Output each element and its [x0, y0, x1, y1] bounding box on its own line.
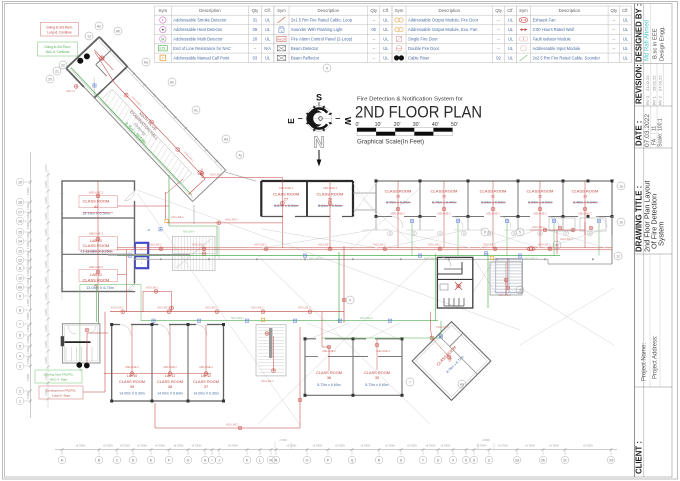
svg-text:Design Engg.: Design Engg.	[660, 26, 666, 61]
svg-text:2: 2	[19, 389, 21, 393]
svg-text:Addressable Manual Call Point: Addressable Manual Call Point	[173, 56, 230, 61]
svg-text:L: L	[259, 458, 261, 462]
svg-text:S: S	[400, 458, 403, 462]
svg-text:Sym: Sym	[395, 8, 404, 13]
svg-text:19: 19	[18, 180, 22, 184]
svg-text:CLASS ROOM: CLASS ROOM	[83, 243, 110, 248]
svg-text:S: S	[465, 458, 468, 462]
svg-text:ASD-LINE 2: ASD-LINE 2	[146, 287, 159, 290]
svg-text:ASD-L 2: ASD-L 2	[66, 90, 76, 93]
svg-text:V: V	[452, 458, 455, 462]
svg-text:7.6200: 7.6200	[45, 324, 48, 332]
svg-text:R: R	[378, 458, 381, 462]
svg-text:UL: UL	[508, 46, 514, 51]
svg-text:W: W	[343, 117, 353, 126]
svg-text:K: K	[246, 458, 249, 462]
svg-text:D: D	[132, 458, 135, 462]
svg-text:14.00m X 6.84m: 14.00m X 6.84m	[157, 392, 183, 396]
svg-text:REVISION:: REVISION:	[635, 64, 644, 104]
svg-text:4.5000: 4.5000	[27, 212, 30, 220]
svg-text:10': 10'	[375, 122, 382, 128]
svg-text:RV 0: RV 0	[645, 95, 650, 105]
svg-text:2x1.5 Rm Fire Rated Cable, Loo: 2x1.5 Rm Fire Rated Cable, Loop	[291, 18, 353, 23]
svg-text:Clf.: Clf.	[264, 8, 270, 13]
svg-text:4.5000: 4.5000	[27, 222, 30, 230]
svg-text:36: 36	[327, 375, 331, 380]
svg-text:RV 1: RV 1	[651, 95, 656, 105]
svg-text:ASD-LINE 2: ASD-LINE 2	[391, 212, 405, 215]
svg-text:ASD-LINE 2: ASD-LINE 2	[376, 350, 390, 353]
svg-text:CLASS ROOM: CLASS ROOM	[83, 278, 110, 283]
svg-text:7.6200: 7.6200	[45, 340, 48, 348]
svg-text:7.6200: 7.6200	[45, 356, 48, 364]
svg-text:Aa: Aa	[144, 60, 148, 64]
svg-text:ASD-LINE 2: ASD-LINE 2	[171, 216, 184, 219]
svg-text:1: 1	[19, 399, 21, 403]
svg-text:--: --	[612, 27, 615, 32]
svg-text:ASD-LINE 2: ASD-LINE 2	[533, 212, 547, 215]
svg-text:2a: 2a	[515, 458, 519, 462]
svg-text:4.5000: 4.5000	[27, 298, 30, 306]
svg-text:0': 0'	[356, 122, 360, 128]
svg-text:9: 9	[326, 66, 328, 70]
svg-text:Addressable Smoke Detector: Addressable Smoke Detector	[173, 18, 227, 23]
svg-text:Description: Description	[559, 8, 581, 13]
svg-text:Ag: Ag	[460, 382, 464, 386]
svg-text:Fault Isolator Module: Fault Isolator Module	[533, 37, 572, 42]
svg-text:2d: 2d	[609, 458, 613, 462]
svg-text:2:00 Hours Rated Wall: 2:00 Hours Rated Wall	[533, 27, 574, 32]
svg-text:4.5000: 4.5000	[27, 346, 30, 354]
svg-text:09: 09	[253, 27, 258, 32]
svg-text:ASD-LINE 2: ASD-LINE 2	[111, 307, 124, 310]
svg-text:ASD-LINE 2: ASD-LINE 2	[578, 212, 592, 215]
svg-text:F: F	[162, 56, 164, 60]
svg-text:8.67m x 6.54m: 8.67m x 6.54m	[274, 204, 298, 208]
svg-text:LAB 12: LAB 12	[90, 273, 102, 277]
svg-text:Addressable Output Module, Fir: Addressable Output Module, Fire Door	[408, 18, 479, 23]
svg-text:Ab: Ab	[116, 29, 120, 33]
svg-text:=6.7000=: =6.7000=	[335, 445, 346, 448]
svg-text:Loop-6, Continue: Loop-6, Continue	[47, 31, 72, 35]
svg-text:UL: UL	[383, 18, 389, 23]
svg-text:UL: UL	[508, 27, 514, 32]
svg-text:NAC-LINE 4: NAC-LINE 4	[360, 317, 373, 320]
svg-text:L: L	[141, 261, 143, 265]
svg-text:S: S	[316, 93, 322, 103]
svg-text:RV 2: RV 2	[658, 95, 663, 105]
svg-text:B: B	[98, 458, 101, 462]
svg-text:2c: 2c	[563, 458, 567, 462]
svg-text:7.6200: 7.6200	[45, 260, 48, 268]
svg-text:4.5000: 4.5000	[27, 259, 30, 267]
svg-text:Project Address:: Project Address:	[653, 335, 659, 379]
svg-text:Ac: Ac	[194, 108, 198, 112]
svg-text:7.6200: 7.6200	[45, 196, 48, 204]
svg-text:11: 11	[18, 266, 22, 270]
svg-text:--: --	[372, 46, 375, 51]
svg-text:UL: UL	[383, 56, 389, 61]
svg-text:--: --	[372, 56, 375, 61]
svg-text:Coming from FACP/2,: Coming from FACP/2,	[43, 373, 73, 377]
svg-text:Sym: Sym	[277, 8, 286, 13]
svg-text:=6.7000=: =6.7000=	[549, 445, 560, 448]
svg-text:UL: UL	[623, 37, 629, 42]
svg-text:7: 7	[19, 322, 21, 326]
svg-text:13.19m X 6.50m: 13.19m X 6.50m	[82, 212, 110, 216]
svg-text:Double Fire Door: Double Fire Door	[408, 46, 440, 51]
svg-text:--: --	[612, 18, 615, 23]
svg-text:N/A: N/A	[264, 46, 271, 51]
svg-text:UL: UL	[508, 18, 514, 23]
svg-text:4.5000: 4.5000	[27, 312, 30, 320]
svg-text:F: F	[162, 19, 164, 23]
svg-text:50': 50'	[451, 122, 458, 128]
svg-text:--: --	[254, 46, 257, 51]
svg-text:ASD-LINE 2: ASD-LINE 2	[322, 350, 336, 353]
svg-text:07.03.22: 07.03.22	[658, 75, 663, 91]
svg-text:=6.7000=: =6.7000=	[440, 445, 451, 448]
svg-text:EOL: EOL	[159, 47, 166, 51]
svg-text:28: 28	[328, 197, 333, 202]
svg-text:=6.7000=: =6.7000=	[360, 445, 371, 448]
svg-text:2ND FLOOR PLAN: 2ND FLOOR PLAN	[355, 103, 482, 122]
svg-text:03: 03	[253, 56, 258, 61]
svg-text:NAC-LINE 4: NAC-LINE 4	[231, 317, 244, 320]
svg-text:7.6200: 7.6200	[45, 164, 48, 172]
svg-text:UL: UL	[623, 46, 629, 51]
svg-text:H: H	[204, 458, 207, 462]
svg-text:20: 20	[48, 77, 52, 81]
svg-text:=6.7000=: =6.7000=	[286, 445, 297, 448]
svg-text:8: 8	[19, 308, 21, 312]
svg-text:2b: 2b	[541, 458, 545, 462]
svg-text:=6.7000=: =6.7000=	[425, 445, 436, 448]
svg-text:4: 4	[349, 298, 351, 302]
svg-text:4.5000: 4.5000	[27, 251, 30, 259]
svg-text:Clf.: Clf.	[507, 8, 513, 13]
svg-text:Cable Riser: Cable Riser	[408, 56, 430, 61]
svg-text:6: 6	[484, 230, 486, 234]
svg-text:=6.7000=: =6.7000=	[103, 445, 114, 448]
svg-text:3: 3	[19, 364, 21, 368]
svg-text:Md Rafi Ahmed: Md Rafi Ahmed	[645, 20, 651, 61]
svg-text:ASD-LINE 2: ASD-LINE 2	[163, 366, 177, 369]
svg-text:Z: Z	[488, 458, 491, 462]
svg-text:05: 05	[371, 27, 376, 32]
svg-text:Description: Description	[439, 8, 461, 13]
svg-text:7.6200: 7.6200	[45, 292, 48, 300]
svg-text:--: --	[372, 18, 375, 23]
svg-text:N: N	[275, 458, 278, 462]
svg-text:=6.7000=: =6.7000=	[385, 445, 396, 448]
svg-text:ASD-LINE 2: ASD-LINE 2	[251, 307, 264, 310]
svg-text:UL: UL	[265, 37, 271, 42]
svg-text:ASD-LINE 2: ASD-LINE 2	[428, 244, 441, 247]
svg-text:O: O	[306, 458, 309, 462]
svg-text:ASD-LINE 2: ASD-LINE 2	[89, 232, 104, 236]
svg-text:=6.7000=: =6.7000=	[173, 445, 184, 448]
svg-text:Ah: Ah	[170, 80, 174, 84]
svg-text:ASD-LINE 2: ASD-LINE 2	[298, 307, 311, 310]
svg-text:Addressable Input Module: Addressable Input Module	[533, 46, 581, 51]
svg-text:14.00m X 6.30m: 14.00m X 6.30m	[119, 392, 145, 396]
svg-text:2.7200: 2.7200	[279, 439, 287, 442]
svg-text:7: 7	[409, 380, 411, 384]
svg-text:CLASS ROOM: CLASS ROOM	[83, 199, 110, 204]
svg-text:ASD-LINE 2: ASD-LINE 2	[436, 326, 449, 329]
svg-text:Description: Description	[318, 8, 340, 13]
svg-text:End of Line Resistance for NAC: End of Line Resistance for NAC	[173, 46, 231, 51]
svg-text:Going to 3rd Floor,: Going to 3rd Floor,	[44, 45, 71, 49]
svg-text:=6.7000=: =6.7000=	[228, 445, 239, 448]
svg-text:=6.7000=: =6.7000=	[155, 445, 166, 448]
svg-text:FA: FA	[651, 138, 657, 145]
svg-text:Loop-6, Start: Loop-6, Start	[52, 394, 70, 398]
svg-text:1c: 1c	[616, 254, 620, 258]
svg-text:38: 38	[168, 384, 172, 389]
svg-text:--: --	[372, 37, 375, 42]
svg-text:7.6200: 7.6200	[45, 244, 48, 252]
svg-text:2x2.5 Rm Fire Rated Cable, Sou: 2x2.5 Rm Fire Rated Cable, Sounder	[533, 56, 601, 61]
svg-text:ASD-LINE 2: ASD-LINE 2	[149, 244, 162, 247]
svg-text:ASD-LINE 2: ASD-LINE 2	[225, 219, 238, 222]
svg-text:-B: -B	[147, 228, 150, 232]
svg-text:1b: 1b	[619, 220, 623, 224]
svg-text:=6.7000=: =6.7000=	[137, 445, 148, 448]
svg-text:5: 5	[19, 344, 21, 348]
svg-text:10: 10	[18, 276, 22, 280]
svg-text:21.02.22: 21.02.22	[645, 75, 650, 91]
svg-text:ASD-LINE 2: ASD-LINE 2	[373, 244, 386, 247]
svg-text:Exhaust Fan: Exhaust Fan	[533, 18, 557, 23]
svg-text:UL: UL	[383, 37, 389, 42]
svg-text:4.5000: 4.5000	[27, 336, 30, 344]
svg-text:UL: UL	[508, 56, 514, 61]
svg-text:UL: UL	[623, 27, 629, 32]
svg-text:System: System	[657, 222, 666, 246]
svg-text:5: 5	[519, 230, 521, 234]
svg-text:Description: Description	[199, 8, 221, 13]
svg-text:30': 30'	[413, 122, 420, 128]
svg-text:4: 4	[19, 354, 21, 358]
svg-text:13: 13	[87, 34, 91, 38]
svg-text:07.03.2022: 07.03.2022	[644, 114, 651, 147]
svg-text:B.sc in EEE: B.sc in EEE	[653, 28, 659, 59]
svg-text:4.5000: 4.5000	[27, 202, 30, 210]
svg-text:ASD-LINE 2: ASD-LINE 2	[192, 244, 205, 247]
svg-text:=6.7000=: =6.7000=	[498, 445, 509, 448]
svg-text:ASD-LINE 2: ASD-LINE 2	[323, 186, 338, 190]
svg-text:4.5000: 4.5000	[27, 232, 30, 240]
svg-text:13.08m X 6.75m: 13.08m X 6.75m	[86, 286, 114, 290]
svg-text:--: --	[497, 46, 500, 51]
svg-text:40': 40'	[432, 122, 439, 128]
svg-text:UL: UL	[623, 18, 629, 23]
svg-text:ASD-LINE 2: ASD-LINE 2	[532, 226, 545, 229]
svg-text:Qty: Qty	[370, 8, 378, 13]
svg-text:7.6200: 7.6200	[45, 228, 48, 236]
svg-text:UL: UL	[383, 46, 389, 51]
svg-text:7.6200: 7.6200	[45, 212, 48, 220]
svg-text:18: 18	[18, 200, 22, 204]
svg-text:=6.7000=: =6.7000=	[407, 445, 418, 448]
svg-text:Coming from FACP/2,: Coming from FACP/2,	[46, 389, 76, 393]
svg-text:ASD-LINE 2: ASD-LINE 2	[157, 307, 170, 310]
svg-text:Aj: Aj	[238, 153, 241, 157]
svg-text:UL: UL	[265, 27, 271, 32]
svg-text:NAC-4, Start: NAC-4, Start	[50, 378, 68, 382]
svg-text:21: 21	[55, 69, 59, 73]
svg-text:P: P	[327, 458, 330, 462]
svg-text:4.5000: 4.5000	[27, 268, 30, 276]
svg-text:ASD-LINE 2: ASD-LINE 2	[199, 366, 213, 369]
svg-text:FACP: FACP	[278, 37, 286, 41]
svg-text:6: 6	[19, 333, 21, 337]
svg-text:Beam Detector: Beam Detector	[291, 46, 319, 51]
svg-text:31: 31	[253, 18, 258, 23]
svg-text:8.72m x 6.60m: 8.72m x 6.60m	[365, 383, 388, 387]
svg-text:4.5000: 4.5000	[27, 356, 30, 364]
svg-text:T: T	[422, 458, 425, 462]
svg-text:NaC-6, Continue: NaC-6, Continue	[46, 50, 70, 54]
svg-text:9: 9	[19, 294, 21, 298]
svg-text:S: S	[280, 29, 282, 33]
svg-text:4.5000: 4.5000	[27, 287, 30, 295]
svg-text:J: J	[218, 458, 220, 462]
svg-text:Sym: Sym	[159, 8, 168, 13]
svg-text:4.5000: 4.5000	[27, 278, 30, 286]
svg-text:Qty: Qty	[252, 8, 260, 13]
svg-text:Lab 12: Lab 12	[201, 374, 211, 378]
svg-text:20: 20	[253, 37, 258, 42]
svg-text:=6.7000=: =6.7000=	[312, 445, 323, 448]
svg-text:DATE :: DATE :	[635, 121, 644, 146]
svg-text:ASD-LINE 2: ASD-LINE 2	[538, 244, 551, 247]
svg-text:Clf.: Clf.	[383, 8, 389, 13]
svg-text:3: 3	[519, 288, 521, 292]
svg-text:ASD-LINE 2: ASD-LINE 2	[279, 186, 294, 190]
svg-text:--: --	[612, 37, 615, 42]
svg-text:I: I	[212, 458, 213, 462]
svg-text:27: 27	[284, 197, 289, 202]
svg-text:11: 11	[651, 126, 657, 131]
svg-text:1a: 1a	[619, 184, 623, 188]
svg-text:15: 15	[18, 230, 22, 234]
svg-text:4.5000: 4.5000	[27, 241, 30, 249]
svg-text:G: G	[187, 458, 190, 462]
svg-text:Sym: Sym	[519, 8, 528, 13]
svg-text:Addressable Output Module, Exu: Addressable Output Module, Exu. Fan	[408, 27, 478, 32]
svg-text:4.5000: 4.5000	[27, 325, 30, 333]
svg-text:UL: UL	[265, 56, 271, 61]
svg-text:Ad: Ad	[224, 137, 228, 141]
svg-text:Going to 3rd Floor,: Going to 3rd Floor,	[46, 26, 73, 30]
svg-text:DESIGNED BY :: DESIGNED BY :	[635, 4, 644, 62]
svg-text:UL: UL	[265, 18, 271, 23]
svg-text:Scale: 100:1: Scale: 100:1	[658, 118, 664, 147]
svg-text:Lab 11: Lab 11	[165, 374, 175, 378]
svg-text:Graphical Scale(In Feet): Graphical Scale(In Feet)	[357, 139, 424, 146]
svg-text:--: --	[497, 37, 500, 42]
svg-text:CLIENT :: CLIENT :	[635, 441, 644, 474]
svg-text:12: 12	[18, 258, 22, 262]
svg-text:42: 42	[94, 204, 99, 209]
svg-text:ASD-LINE 2: ASD-LINE 2	[560, 238, 573, 241]
svg-text:Project Name:: Project Name:	[642, 343, 648, 381]
svg-text:9a: 9a	[18, 285, 22, 289]
svg-text:7.6200: 7.6200	[45, 276, 48, 284]
svg-text:Q: Q	[351, 458, 354, 462]
svg-text:U: U	[437, 458, 440, 462]
svg-text:Qty: Qty	[610, 8, 618, 13]
svg-text:8.72m x 6.60m: 8.72m x 6.60m	[317, 383, 340, 387]
svg-text:7.6200: 7.6200	[45, 180, 48, 188]
svg-text:ASD-LINE 2: ASD-LINE 2	[486, 212, 500, 215]
svg-text:22: 22	[61, 63, 65, 67]
svg-text:28.02.22: 28.02.22	[651, 75, 656, 91]
svg-text:Lab 10: Lab 10	[127, 374, 137, 378]
svg-text:Addressable Multi Detector: Addressable Multi Detector	[173, 37, 223, 42]
svg-text:Addressable Heat Detector: Addressable Heat Detector	[173, 27, 223, 32]
svg-text:14.00m X 6.30m: 14.00m X 6.30m	[193, 392, 219, 396]
svg-text:17: 17	[18, 210, 22, 214]
svg-text:4.5000: 4.5000	[27, 374, 30, 382]
svg-text:Fire Alarm Control Panel (2-Lo: Fire Alarm Control Panel (2-Loop)	[291, 37, 353, 42]
svg-text:NAC-B/M 4: NAC-B/M 4	[183, 231, 195, 234]
svg-text:ASD-LINE 2: ASD-LINE 2	[125, 366, 139, 369]
svg-text:20': 20'	[394, 122, 401, 128]
svg-text:ASD-LINE 2: ASD-LINE 2	[254, 244, 267, 247]
svg-text:--: --	[497, 27, 500, 32]
svg-text:ASD-LINE 2: ASD-LINE 2	[261, 380, 274, 383]
svg-text:7.6200: 7.6200	[45, 308, 48, 316]
svg-text:Af: Af	[555, 243, 558, 247]
svg-text:M: M	[162, 37, 165, 41]
svg-text:ASD-LINE 2: ASD-LINE 2	[89, 191, 104, 195]
svg-text:UL: UL	[383, 27, 389, 32]
svg-text:=6.7000=: =6.7000=	[583, 445, 594, 448]
svg-text:35: 35	[375, 375, 379, 380]
svg-text:ASD-LINE 2: ASD-LINE 2	[210, 174, 223, 177]
svg-text:Beam Reflector: Beam Reflector	[291, 56, 320, 61]
svg-text:UL: UL	[508, 37, 514, 42]
svg-text:02: 02	[496, 56, 501, 61]
svg-text:14: 14	[18, 239, 22, 243]
svg-text:ASD-LINE 2: ASD-LINE 2	[205, 307, 218, 310]
svg-text:N: N	[313, 135, 324, 152]
svg-text:13: 13	[18, 249, 22, 253]
svg-text:Qty: Qty	[495, 8, 503, 13]
svg-text:41 13.08m X 6.75m: 41 13.08m X 6.75m	[80, 250, 111, 254]
svg-text:C: C	[116, 458, 119, 462]
svg-text:37: 37	[204, 384, 208, 389]
svg-text:4.5000: 4.5000	[27, 187, 30, 195]
svg-text:S: S	[473, 458, 476, 462]
svg-text:39: 39	[130, 384, 134, 389]
svg-text:A: A	[61, 458, 64, 462]
svg-text:Single Fire Door: Single Fire Door	[408, 37, 438, 42]
svg-text:4.5000: 4.5000	[27, 391, 30, 399]
svg-text:ASD-LINE 2: ASD-LINE 2	[226, 424, 239, 427]
svg-text:E: E	[286, 118, 296, 124]
svg-text:ASD-LINE 2: ASD-LINE 2	[437, 212, 451, 215]
svg-text:--: --	[612, 46, 615, 51]
svg-text:--: --	[497, 18, 500, 23]
svg-text:Sounder With Flashing Light: Sounder With Flashing Light	[291, 27, 343, 32]
svg-text:Clf.: Clf.	[622, 8, 628, 13]
svg-text:=6.7000=: =6.7000=	[120, 445, 131, 448]
